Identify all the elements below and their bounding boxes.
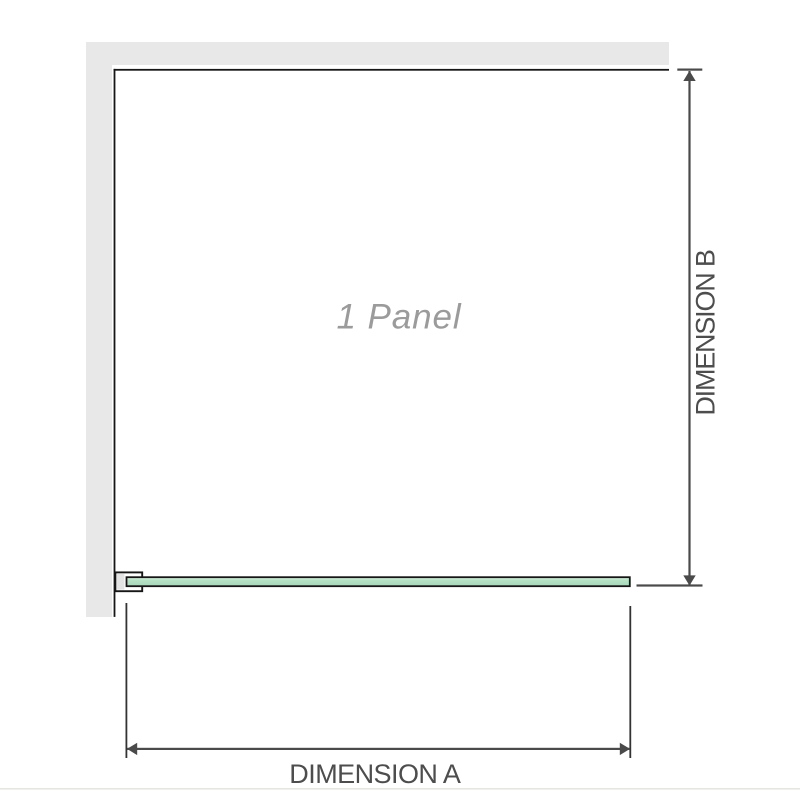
svg-text:1 Panel: 1 Panel bbox=[337, 298, 462, 337]
svg-text:DIMENSION A: DIMENSION A bbox=[289, 759, 461, 789]
svg-text:DIMENSION B: DIMENSION B bbox=[691, 250, 721, 416]
